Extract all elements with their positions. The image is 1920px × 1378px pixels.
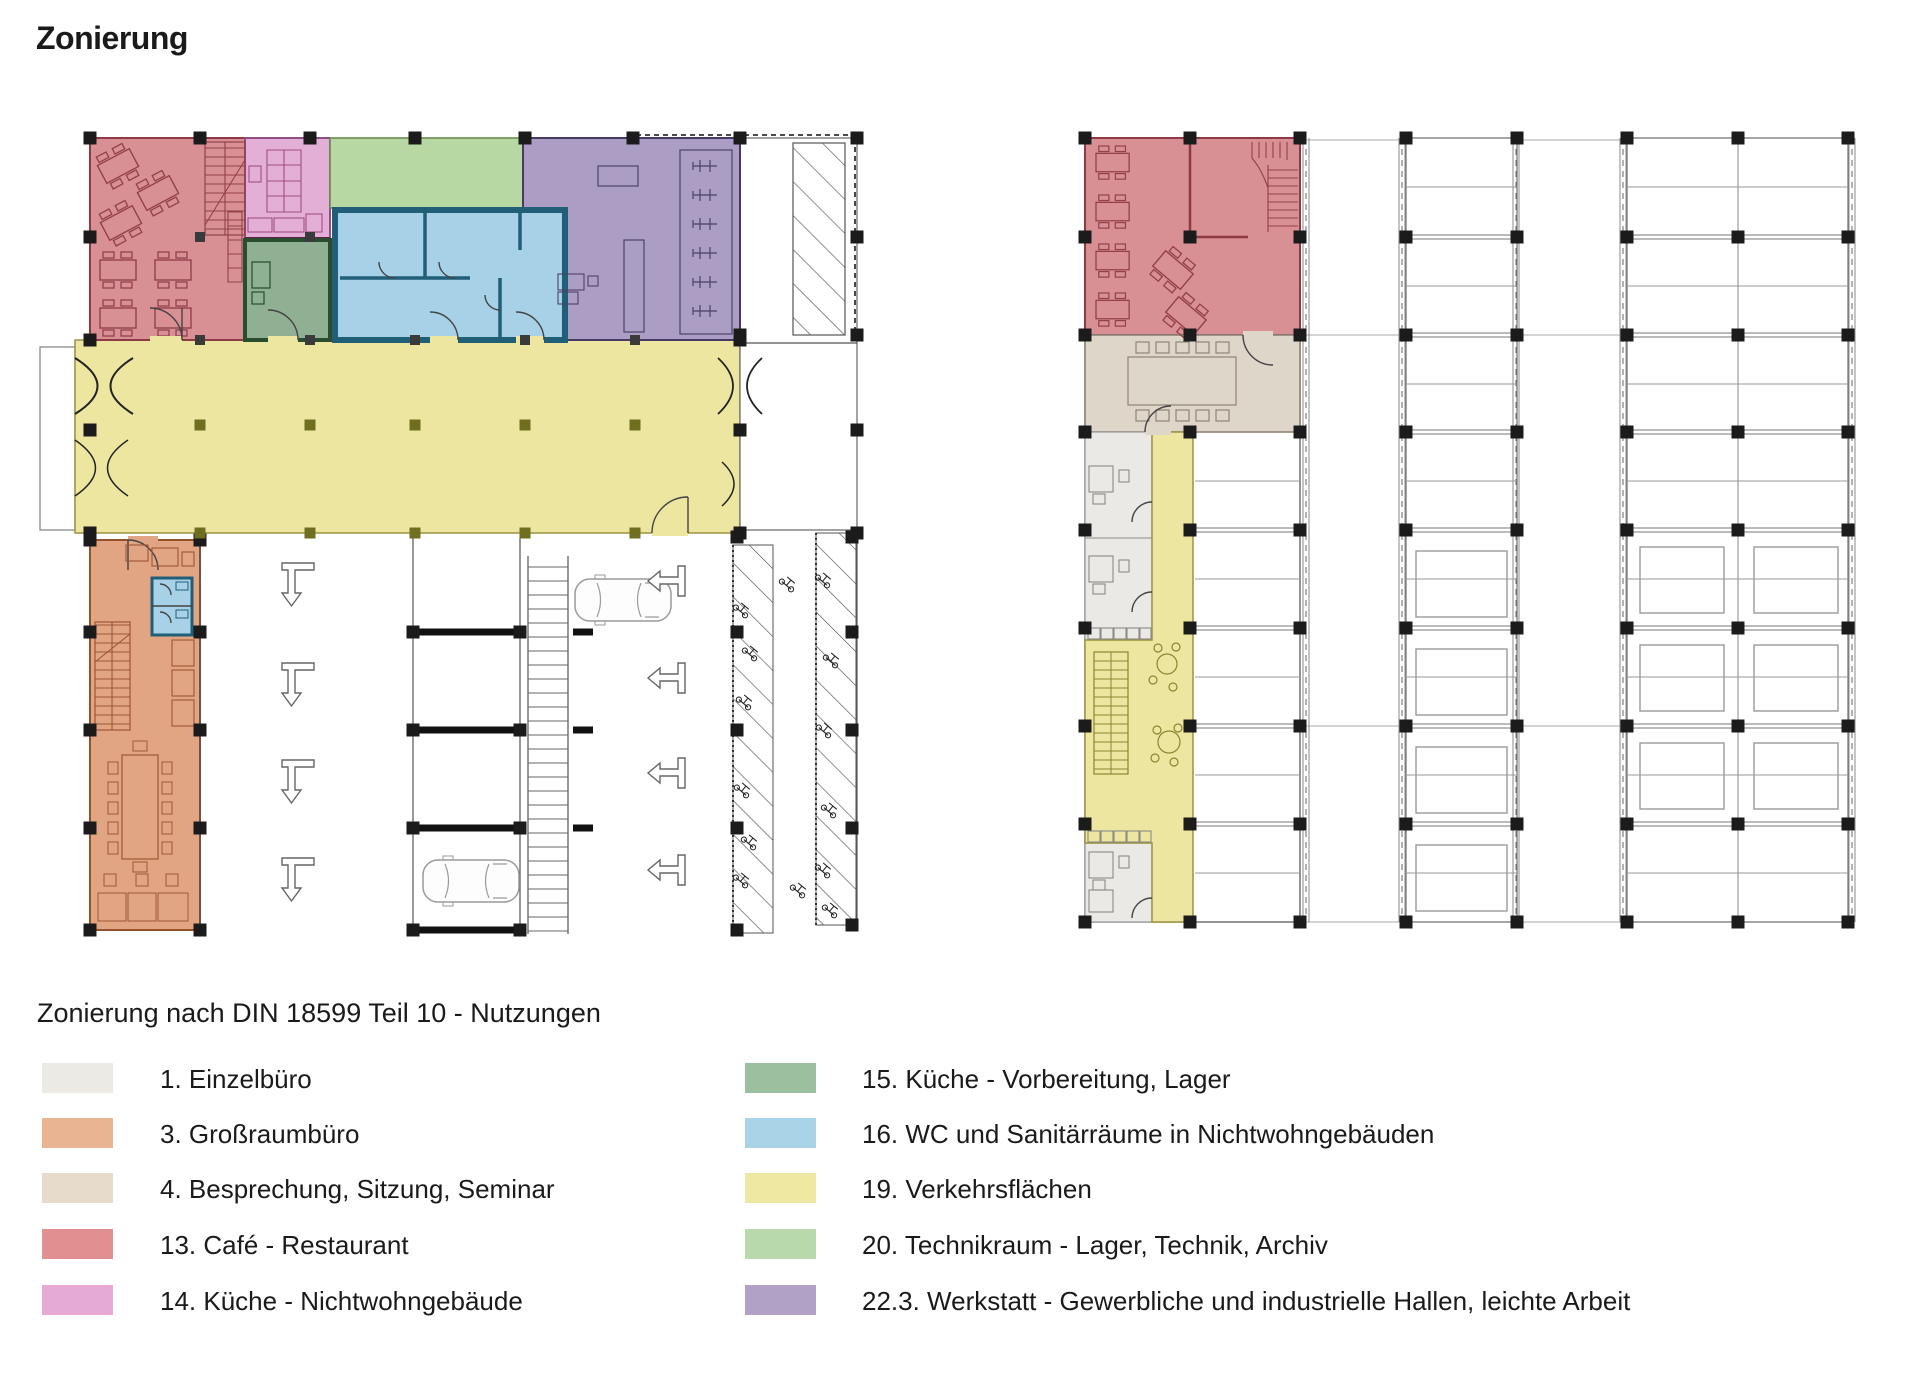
- legend-swatch-kueche-vorbereitung: [745, 1063, 816, 1093]
- zone-kueche-vorbereitung: [245, 240, 330, 340]
- zone-kueche-nichtwohngebaeude: [245, 138, 330, 240]
- legend-swatch-werkstatt: [745, 1285, 816, 1315]
- legend-swatch-grossraumbuero: [42, 1118, 113, 1148]
- page-title: Zonierung: [36, 20, 188, 57]
- zone-technikraum: [330, 138, 523, 208]
- zone-besprechung: [1085, 335, 1300, 432]
- zone-verkehrsflaechen-left: [75, 340, 740, 533]
- legend-swatch-verkehrsflaechen: [745, 1173, 816, 1203]
- zoning-page: Zonierung: [0, 0, 1920, 1378]
- legend-swatch-einzelbuero: [42, 1063, 113, 1093]
- legend-swatch-wc: [745, 1118, 816, 1148]
- legend-swatch-besprechung: [42, 1173, 113, 1203]
- upper-floor-plan: [1078, 126, 1868, 938]
- parking-area: [200, 533, 857, 934]
- legend-swatch-cafe: [42, 1229, 113, 1259]
- ground-floor-plan: [30, 120, 870, 945]
- legend-swatch-technikraum: [745, 1229, 816, 1259]
- legend-swatch-kueche-nwg: [42, 1285, 113, 1315]
- legend-title: Zonierung nach DIN 18599 Teil 10 - Nutzu…: [37, 998, 601, 1029]
